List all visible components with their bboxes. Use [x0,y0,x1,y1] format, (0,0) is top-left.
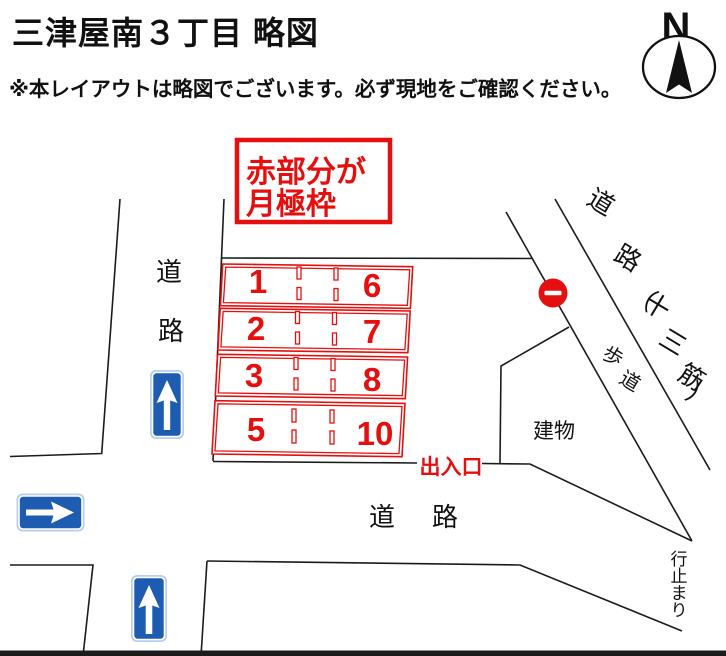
bottom-road-south-edge-left [10,565,93,656]
svg-text:道: 道 [582,183,620,222]
left-road-west-edge [10,199,120,457]
space-number: 8 [363,361,381,398]
dead-end-label: 行 止 ま り [671,550,688,620]
legend-line-1: 赤部分が [246,155,366,189]
no-entry-sign-icon [539,279,568,308]
one-way-up-sign-left-icon [150,370,184,439]
bottom-border-bar [0,651,726,656]
sidewalk-inner-edge [506,212,692,541]
legend-line-2: 月極枠 [246,188,336,221]
legend-box: 赤部分が 月極枠 [237,140,390,222]
one-way-up-sign-bottom-icon [131,575,167,642]
space-number: 5 [247,411,265,448]
one-way-right-sign-icon [17,494,85,532]
sketch-map-page: 三津屋南３丁目 略図 ※本レイアウトは略図でございます。必ず現地をご確認ください… [0,0,726,656]
svg-text:三: 三 [654,323,692,362]
space-number: 10 [357,415,394,452]
parking-south-edge-right [482,464,692,542]
svg-text:路: 路 [609,239,647,278]
space-number: 2 [247,310,265,347]
space-number: 1 [249,263,267,300]
main-road-label: 道 路 （ 十 三 筋 ） [582,183,719,416]
bottom-road-label-1: 道 [369,502,395,532]
space-number: 7 [363,313,381,350]
parking-block: 1 6 2 7 3 8 5 10 [212,263,413,457]
bottom-road-label-2: 路 [432,502,458,532]
compass-icon: N [643,5,715,98]
svg-text:歩: 歩 [598,341,627,371]
bottom-road-east-edge [201,561,207,656]
left-road-label-1: 道 [156,257,182,287]
building-label: 建物 [533,420,575,443]
space-number: 3 [245,357,263,394]
left-road-label-2: 路 [158,316,184,346]
parking-south-edge-left [213,462,417,464]
parking-north-edge [222,258,532,259]
bottom-road-south-edge-right [207,561,682,631]
svg-text:り: り [671,601,688,620]
space-number: 6 [363,267,381,304]
entrance-label: 出入口 [420,456,483,479]
svg-text:道: 道 [615,366,644,396]
map-canvas: 1 6 2 7 3 8 5 10 出入口 赤部分が 月極枠 道 路 道 路 道 … [0,0,726,656]
